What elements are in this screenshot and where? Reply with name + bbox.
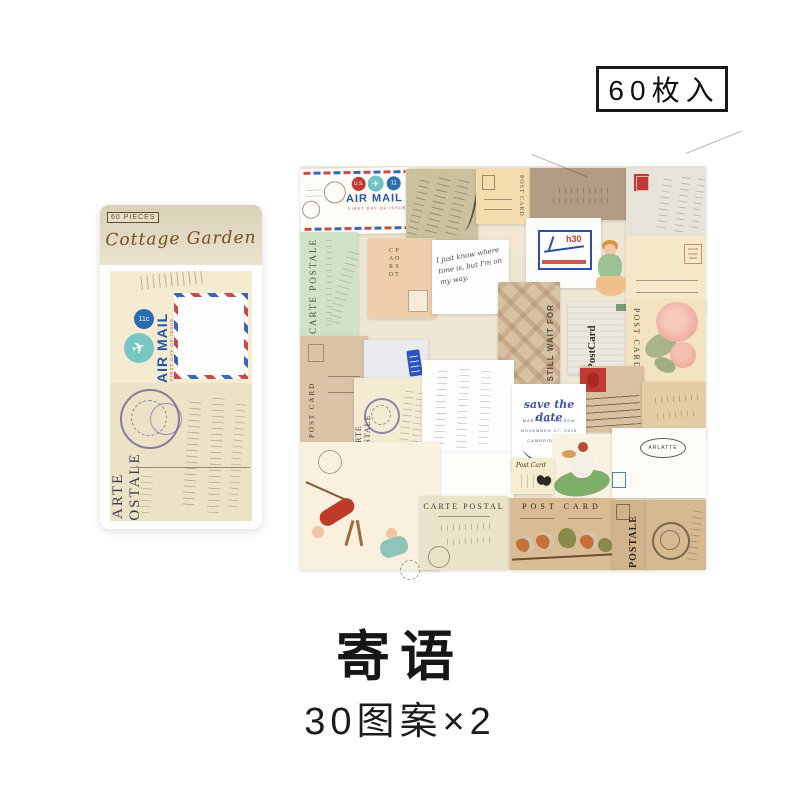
peach-postcard: POST CARD bbox=[368, 238, 436, 318]
postale-strip: POSTALE bbox=[612, 500, 648, 570]
eleven-stamp-text: 11 bbox=[391, 180, 397, 186]
first-day-line: FIRST DAY OF ISSUE bbox=[348, 205, 406, 211]
postcard-one-word-text: PostCard bbox=[586, 325, 598, 370]
postcard-line bbox=[484, 199, 512, 200]
still-wait-label: I STILL WAIT FOR bbox=[546, 292, 555, 388]
date-text: NOVEMBER 17, 2015 bbox=[521, 428, 578, 433]
handwriting-note: I just know where time is, but I'm on my… bbox=[436, 245, 507, 290]
postcard-line bbox=[636, 280, 698, 281]
envelope-flap-line bbox=[686, 131, 742, 154]
post-card-script-text: Post Card bbox=[516, 462, 546, 469]
postcard-one-word-label: PostCard bbox=[586, 306, 598, 370]
package-header: 60 PIECES Cottage Garden bbox=[100, 205, 262, 265]
bird-robin bbox=[516, 536, 534, 552]
emboss-ridges bbox=[568, 302, 628, 374]
chair-leg bbox=[344, 520, 354, 546]
double-postmark bbox=[652, 522, 690, 560]
post-card-script-label: Post Card bbox=[516, 462, 546, 469]
carte-postal-card: CARTE POSTAL bbox=[420, 496, 508, 570]
subtext-line bbox=[568, 518, 602, 519]
post-card-label: POST CARD bbox=[510, 502, 614, 511]
airmail-dash-top bbox=[303, 170, 405, 175]
airmail-envelope-title: AIR MAIL bbox=[346, 192, 403, 205]
first-day-line-text: FIRST DAY OF ISSUE bbox=[348, 205, 406, 211]
carte-postal-text: CARTE POSTAL bbox=[423, 502, 504, 511]
gnome-illustration bbox=[552, 434, 612, 502]
stamp-portrait bbox=[587, 372, 599, 388]
red-stamp-cancel-paper bbox=[580, 366, 644, 432]
small-postmark bbox=[318, 450, 342, 474]
blank-white-card bbox=[434, 452, 514, 498]
handwriting-squiggle bbox=[674, 172, 692, 235]
postcard-line bbox=[484, 209, 512, 210]
handwriting-squiggle bbox=[652, 410, 696, 421]
handwriting-squiggle bbox=[548, 198, 612, 203]
post-card-label: POST CARD bbox=[308, 370, 316, 438]
carte-postal-label: CARTE POSTAL bbox=[420, 502, 508, 511]
envelope-flap-line bbox=[532, 154, 588, 177]
postale-label: POSTALE bbox=[628, 502, 639, 568]
h30-denomination: h30 bbox=[566, 234, 582, 244]
handwriting-squiggle bbox=[327, 246, 361, 326]
sticker-lines bbox=[409, 353, 420, 372]
still-wait-text: I STILL WAIT FOR bbox=[546, 304, 555, 388]
arlatte-oval-stamp: ARLATTE bbox=[640, 438, 686, 458]
post-card-label: POST CARD bbox=[518, 175, 524, 221]
carte-postale-text: CARTE POSTALE bbox=[308, 238, 318, 334]
red-postage-stamp bbox=[634, 174, 649, 191]
subtext-line bbox=[520, 518, 554, 519]
postcard-line bbox=[636, 292, 698, 293]
postmark-circle-2 bbox=[150, 403, 182, 435]
post-card-text: POST CARD bbox=[388, 248, 400, 280]
stamp-box bbox=[308, 344, 324, 362]
cherub-skirt bbox=[596, 276, 626, 296]
us-stamp-text: U.S. bbox=[354, 181, 364, 187]
post-card-text: POST CARD bbox=[522, 502, 602, 511]
postale-text: POSTALE bbox=[628, 515, 639, 568]
postage-rate-text: 11c bbox=[139, 316, 150, 323]
stamp-box bbox=[408, 290, 428, 312]
postcard-line bbox=[328, 376, 360, 377]
handwriting-squiggle bbox=[135, 271, 202, 290]
airmail-envelope: U.S. ✈ 11 AIR MAIL FIRST DAY OF ISSUE bbox=[299, 167, 410, 235]
sticker-collage: U.S. ✈ 11 AIR MAIL FIRST DAY OF ISSUE PO… bbox=[300, 166, 706, 570]
gnome-hat bbox=[578, 442, 588, 452]
airplane-icon: ✈ bbox=[372, 178, 380, 189]
save-the-date-date: NOVEMBER 17, 2015 bbox=[512, 428, 586, 433]
red-child-head bbox=[312, 526, 324, 538]
mushroom-cap bbox=[562, 450, 576, 458]
carte-postale-label: CARTE POSTALE bbox=[308, 236, 318, 334]
airmail-envelope-title-text: AIR MAIL bbox=[346, 192, 403, 205]
postage-rate-circle: 11c bbox=[134, 309, 154, 329]
cream-postcard: POST CARD bbox=[476, 169, 533, 224]
post-card-text: POST CARD bbox=[308, 382, 316, 438]
handwriting-squiggle bbox=[656, 174, 673, 233]
purple-postmark-inner bbox=[371, 405, 391, 425]
airmail-border-box bbox=[174, 293, 248, 379]
rose-bloom-large bbox=[656, 302, 698, 342]
airmail-label-text: AIR MAIL bbox=[154, 313, 170, 383]
handwriting-squiggle bbox=[478, 366, 492, 446]
subtitle-line bbox=[438, 516, 490, 517]
branch bbox=[512, 553, 612, 560]
post-card-label: POST CARD bbox=[388, 248, 400, 312]
airmail-box-center bbox=[178, 297, 244, 375]
post-card-text: POST CARD bbox=[518, 175, 524, 217]
place-stamp-text: PLACE STAMP HERE bbox=[688, 247, 698, 260]
envelope-postmark bbox=[324, 181, 346, 203]
white-script-paper bbox=[422, 360, 514, 454]
handwriting-squiggle bbox=[690, 174, 706, 233]
tiny-cancel-mark bbox=[400, 560, 420, 580]
brand-title: Cottage Garden bbox=[100, 228, 262, 251]
kraft-envelope bbox=[530, 168, 629, 220]
eleven-stamp-circle: 11 bbox=[387, 176, 401, 190]
green-carte-postale: CARTE POSTALE bbox=[300, 232, 358, 338]
still-wait-strip: I STILL WAIT FOR bbox=[544, 292, 566, 388]
handwriting-note-text: I just know where time is, but I'm on my… bbox=[436, 246, 503, 287]
airmail-label: AIR MAIL bbox=[154, 297, 170, 383]
count-badge-text: 60枚入 bbox=[608, 69, 719, 109]
butterfly-icon bbox=[536, 474, 552, 488]
handwriting-squiggle bbox=[442, 537, 492, 546]
bird-olive bbox=[598, 538, 612, 552]
label-writing bbox=[516, 474, 534, 488]
product-title: 寄语 bbox=[0, 612, 800, 691]
arlatte-label-card: ARLATTE bbox=[612, 428, 706, 498]
handwriting-squiggle bbox=[456, 364, 470, 448]
handwriting-squiggle bbox=[434, 366, 448, 446]
arlatte-text: ARLATTE bbox=[648, 445, 677, 451]
bird-robin bbox=[536, 532, 554, 549]
us-stamp-circle: U.S. bbox=[352, 177, 366, 191]
names-text: MARY AND WILSON bbox=[523, 418, 576, 423]
count-badge: 60枚入 bbox=[596, 66, 728, 112]
product-subtitle-text: 30图案×2 bbox=[304, 701, 496, 743]
post-card-text: POST CARD bbox=[632, 308, 641, 370]
butterfly-postcard-label: Post Card bbox=[512, 458, 554, 494]
airplane-icon: ✈ bbox=[129, 336, 148, 359]
package-artwork: 11c ✈ AIR MAIL FIRST DAY OF ISSUE CARTE … bbox=[110, 271, 252, 521]
olive-script-paper bbox=[406, 169, 478, 241]
embossed-postcard: PostCard bbox=[568, 302, 628, 374]
bird-robin bbox=[580, 532, 598, 549]
airmail-sticker bbox=[406, 349, 422, 377]
stamp-inner bbox=[636, 176, 649, 191]
place-stamp-box: PLACE STAMP HERE bbox=[684, 244, 702, 264]
kraft-postmark-paper bbox=[646, 500, 706, 570]
double-postmark-inner bbox=[660, 530, 680, 550]
handwriting-squiggle bbox=[650, 394, 698, 405]
birds-postcard: POST CARD bbox=[510, 498, 614, 570]
envelope-postmark-2 bbox=[302, 201, 320, 219]
envelope-corner-writing bbox=[306, 185, 322, 199]
handwriting-squiggle bbox=[436, 522, 494, 531]
children-illustration-card bbox=[300, 442, 440, 570]
h30-stamp-card: h30 bbox=[526, 218, 601, 288]
teal-child-body bbox=[378, 534, 410, 560]
cancel-wavy-lines bbox=[583, 394, 641, 428]
handwriting-squiggle bbox=[554, 188, 608, 193]
plane-stamp-circle: ✈ bbox=[368, 175, 384, 191]
product-subtitle: 30图案×2 bbox=[0, 690, 800, 745]
airplane-stamp-circle: ✈ bbox=[124, 333, 154, 363]
bird-olive bbox=[558, 528, 576, 548]
chair-leg bbox=[356, 520, 363, 546]
save-the-date-names: MARY AND WILSON bbox=[512, 418, 586, 423]
stamp-box bbox=[482, 175, 495, 190]
product-package: 60 PIECES Cottage Garden 11c ✈ AIR MAIL … bbox=[100, 205, 262, 529]
pole-prop bbox=[305, 481, 346, 501]
white-postcard-red-stamp bbox=[626, 168, 706, 238]
stamp-red-band bbox=[542, 260, 586, 264]
pieces-count-badge: 60 PIECES bbox=[107, 212, 159, 223]
product-title-text: 寄语 bbox=[336, 627, 464, 687]
postmark-bottom bbox=[428, 546, 450, 568]
cherub-girl-illustration bbox=[594, 240, 628, 304]
green-stamp-fragment bbox=[616, 304, 626, 311]
teal-stamp-box bbox=[612, 472, 626, 488]
h30-text: h30 bbox=[566, 234, 582, 244]
blue-stamp: h30 bbox=[538, 230, 592, 270]
airmail-dash-bottom bbox=[304, 226, 406, 231]
